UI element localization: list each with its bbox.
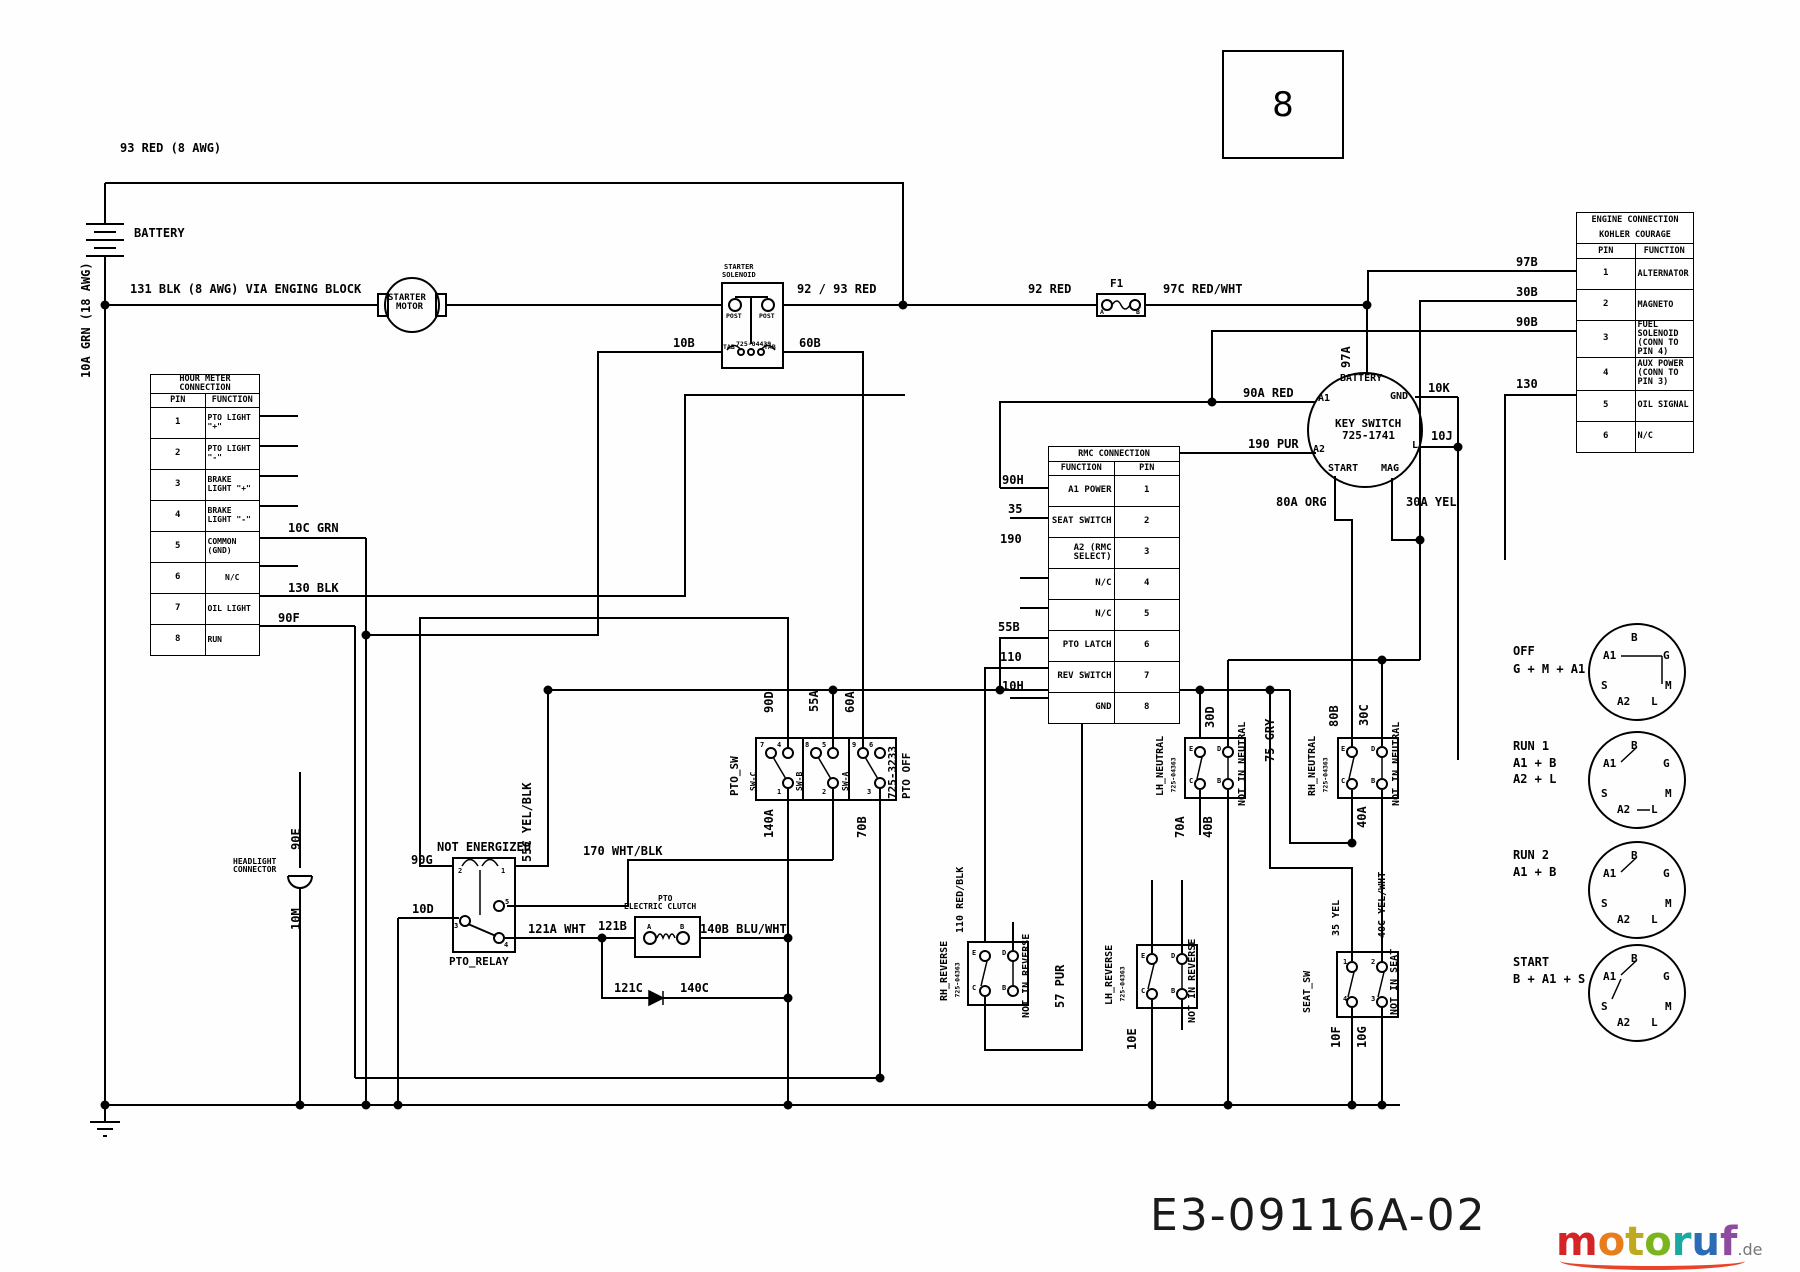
pto-relay-name: PTO_RELAY	[449, 956, 509, 967]
lh-neutral-terminal-d: D	[1217, 746, 1221, 753]
wire-label-55a: 55A	[808, 690, 820, 712]
logo-swoosh	[1560, 1252, 1745, 1270]
wire-label-10k: 10K	[1428, 382, 1450, 394]
wire-label-92-93: 92 / 93 RED	[797, 283, 876, 295]
fuse-terminal-b: B	[1136, 309, 1140, 316]
wire-label-10h: 10H	[1002, 680, 1024, 692]
wire-label-35: 35	[1008, 503, 1022, 515]
wire-label-55b: 55B	[998, 621, 1020, 633]
keypos2-terminal-s: S	[1601, 788, 1608, 799]
keypos1-terminal-l: L	[1651, 696, 1658, 707]
keypos4-terminal-g: G	[1663, 971, 1670, 982]
table-row: 2PTO LIGHT "-"	[151, 438, 260, 469]
keypos3-terminal-m: M	[1665, 898, 1672, 909]
keypos3-terminal-a2: A2	[1617, 914, 1630, 925]
keypos1-terminal-b: B	[1631, 632, 1638, 643]
wire-label-170: 170 WHT/BLK	[583, 845, 662, 857]
rmc-title: RMC CONNECTION	[1049, 447, 1180, 462]
keypos2-terminal-b: B	[1631, 740, 1638, 751]
keypos4-terminal-m: M	[1665, 1001, 1672, 1012]
lh-reverse-terminal-b: B	[1171, 988, 1175, 995]
lh-neutral-part-number: 725-04363	[1171, 757, 1178, 792]
seat-switch-state-label: NOT IN SEAT	[1390, 949, 1400, 1015]
table-row: 4AUX POWER (CONN TO PIN 3)	[1577, 357, 1694, 390]
keypos1-terminal-m: M	[1665, 680, 1672, 691]
keypos-run2-name: RUN 2	[1513, 849, 1549, 861]
keypos2-terminal-l: L	[1651, 804, 1658, 815]
keypos-run1-name: RUN 1	[1513, 740, 1549, 752]
rmc-col-pin: PIN	[1114, 462, 1180, 476]
rh-reverse-terminal-e: E	[972, 950, 976, 957]
table-row: N/C4	[1049, 569, 1180, 600]
clutch-terminal-a: A	[647, 924, 651, 931]
wire-label-130-blk: 130 BLK	[288, 582, 339, 594]
wire-label-30c: 30C	[1358, 704, 1370, 726]
seat-terminal-2: 2	[1371, 959, 1375, 966]
wiring-diagram: 93 RED (8 AWG) BATTERY 10A GRN (18 AWG) …	[0, 0, 1800, 1272]
hour-meter-title: HOUR METER CONNECTION	[151, 375, 260, 394]
table-row: 1PTO LIGHT "+"	[151, 407, 260, 438]
key-switch-name: KEY SWITCH	[1335, 418, 1401, 429]
keypos2-terminal-g: G	[1663, 758, 1670, 769]
hour-meter-col-function: FUNCTION	[205, 393, 260, 407]
solenoid-label-2: SOLENOID	[722, 272, 756, 279]
starter-motor-label-2: MOTOR	[396, 303, 423, 312]
key-switch-a2-terminal: A2	[1313, 445, 1325, 455]
table-row: 6N/C	[151, 562, 260, 593]
wire-label-70a: 70A	[1174, 816, 1186, 838]
pto-terminal-3: 3	[867, 789, 871, 796]
fuse-terminal-a: A	[1100, 309, 1104, 316]
table-row: GND8	[1049, 693, 1180, 724]
solenoid-tab-label-1: TAB	[723, 344, 735, 351]
wire-label-121b: 121B	[598, 920, 627, 932]
wire-label-140b: 140B BLU/WHT	[700, 923, 787, 935]
relay-terminal-3: 3	[454, 923, 458, 930]
wire-label-75gry: 75 GRY	[1264, 719, 1276, 762]
keypos1-terminal-a2: A2	[1617, 696, 1630, 707]
lh-reverse-terminal-e: E	[1141, 953, 1145, 960]
lh-neutral-terminal-c: C	[1189, 778, 1193, 785]
keypos2-terminal-a1: A1	[1603, 758, 1616, 769]
table-row: PTO LATCH6	[1049, 631, 1180, 662]
table-row: 1ALTERNATOR	[1577, 259, 1694, 290]
pto-sw-b-label: SW-B	[796, 772, 804, 791]
keypos3-terminal-a1: A1	[1603, 868, 1616, 879]
wire-label-10c-grn: 10C GRN	[288, 522, 339, 534]
clutch-terminal-b: B	[680, 924, 684, 931]
keypos1-terminal-s: S	[1601, 680, 1608, 691]
rh-reverse-part-number: 725-04363	[955, 962, 962, 997]
key-switch-battery-terminal: BATTERY	[1340, 374, 1382, 384]
pto-sw-a-label: SW-A	[842, 772, 850, 791]
keypos4-terminal-a1: A1	[1603, 971, 1616, 982]
key-switch-mag-terminal: MAG	[1381, 464, 1399, 474]
keypos-run1-detail-1: A1 + B	[1513, 757, 1556, 769]
keypos4-terminal-a2: A2	[1617, 1017, 1630, 1028]
wire-label-140a: 140A	[763, 809, 775, 838]
rh-neutral-state-label: NOT IN NEUTRAL	[1392, 722, 1402, 806]
hour-meter-col-pin: PIN	[151, 393, 206, 407]
lh-reverse-terminal-c: C	[1141, 988, 1145, 995]
pto-switch-name: PTO_SW	[729, 756, 740, 796]
seat-switch-name: SEAT_SW	[1303, 971, 1313, 1013]
key-switch-part-number: 725-1741	[1342, 430, 1395, 441]
rmc-col-function: FUNCTION	[1049, 462, 1115, 476]
lh-neutral-terminal-b: B	[1217, 778, 1221, 785]
wire-label-190: 190	[1000, 533, 1022, 545]
relay-terminal-1: 1	[501, 868, 505, 875]
wire-label-92: 92 RED	[1028, 283, 1071, 295]
keypos3-terminal-s: S	[1601, 898, 1608, 909]
relay-terminal-4: 4	[504, 942, 508, 949]
wire-label-90e: 90E	[290, 828, 302, 850]
wire-label-35yel: 35 YEL	[1332, 900, 1342, 936]
wires	[86, 183, 1576, 1136]
wire-label-131: 131 BLK (8 AWG) VIA ENGING BLOCK	[130, 283, 361, 295]
wire-label-130: 130	[1516, 378, 1538, 390]
wire-label-90h: 90H	[1002, 474, 1024, 486]
wire-label-121a: 121A WHT	[528, 923, 586, 935]
keypos4-terminal-s: S	[1601, 1001, 1608, 1012]
table-row: 4BRAKE LIGHT "-"	[151, 500, 260, 531]
wire-label-30b: 30B	[1516, 286, 1538, 298]
key-switch-l-terminal: L	[1412, 441, 1418, 451]
rh-reverse-terminal-b: B	[1002, 985, 1006, 992]
wire-label-97b: 97B	[1516, 256, 1538, 268]
wire-label-121c: 121C	[614, 982, 643, 994]
engine-col-pin: PIN	[1577, 244, 1636, 259]
wire-label-10f: 10F	[1330, 1026, 1342, 1048]
keypos2-terminal-m: M	[1665, 788, 1672, 799]
pto-terminal-7: 7	[760, 742, 764, 749]
solenoid-label-1: STARTER	[724, 264, 754, 271]
table-row: N/C5	[1049, 600, 1180, 631]
table-row: 3BRAKE LIGHT "+"	[151, 469, 260, 500]
table-row: 6N/C	[1577, 421, 1694, 452]
seat-terminal-1: 1	[1343, 959, 1347, 966]
wire-label-10a: 10A GRN (18 AWG)	[80, 262, 92, 378]
rh-neutral-terminal-c: C	[1341, 778, 1345, 785]
keypos2-terminal-a2: A2	[1617, 804, 1630, 815]
keypos-start-detail: B + A1 + S	[1513, 973, 1585, 985]
wire-label-40b: 40B	[1202, 816, 1214, 838]
wire-label-140c: 140C	[680, 982, 709, 994]
key-switch-a1-terminal: A1	[1318, 394, 1330, 404]
wire-label-110-redblk: 110 RED/BLK	[956, 867, 966, 933]
wire-label-10j: 10J	[1431, 430, 1453, 442]
fuse-f1-label: F1	[1110, 278, 1123, 289]
engine-subtitle: KOHLER COURAGE	[1577, 228, 1694, 244]
key-switch-gnd-terminal: GND	[1390, 392, 1408, 402]
lh-reverse-state-label: NOT IN REVERSE	[1188, 939, 1198, 1023]
schematic-lines	[0, 0, 1800, 1272]
wire-label-90f: 90F	[278, 612, 300, 624]
seat-terminal-4: 4	[1343, 996, 1347, 1003]
rh-reverse-terminal-c: C	[972, 985, 976, 992]
wire-label-110: 110	[1000, 651, 1022, 663]
keypos-run2-detail: A1 + B	[1513, 866, 1556, 878]
hour-meter-connection-table: HOUR METER CONNECTION PIN FUNCTION 1PTO …	[150, 374, 260, 656]
keypos-off-detail: G + M + A1	[1513, 663, 1585, 675]
keypos-run1-detail-2: A2 + L	[1513, 773, 1556, 785]
table-row: 2MAGNETO	[1577, 290, 1694, 321]
rh-reverse-terminal-d: D	[1002, 950, 1006, 957]
rh-neutral-terminal-e: E	[1341, 746, 1345, 753]
lh-neutral-name: LH_NEUTRAL	[1156, 736, 1166, 796]
wire-label-60b: 60B	[799, 337, 821, 349]
rh-reverse-name: RH_REVERSE	[940, 941, 950, 1001]
wire-label-90b: 90B	[1516, 316, 1538, 328]
wire-label-90g: 90G	[411, 854, 433, 866]
table-row: 5COMMON (GND)	[151, 531, 260, 562]
pto-terminal-1: 1	[777, 789, 781, 796]
wire-label-40c: 40C YEL/WHT	[1378, 872, 1388, 938]
key-switch-start-terminal: START	[1328, 464, 1358, 474]
rmc-connection-table: RMC CONNECTION FUNCTION PIN A1 POWER1 SE…	[1048, 446, 1180, 724]
battery-label: BATTERY	[134, 227, 185, 239]
solenoid-tab-label-2: TAB	[764, 344, 776, 351]
wire-label-190pur: 190 PUR	[1248, 438, 1299, 450]
table-row: 8RUN	[151, 624, 260, 655]
seat-terminal-3: 3	[1371, 996, 1375, 1003]
solenoid-post-label-2: POST	[759, 313, 775, 320]
keypos4-terminal-b: B	[1631, 953, 1638, 964]
solenoid-post-label-1: POST	[726, 313, 742, 320]
rh-neutral-terminal-b: B	[1371, 778, 1375, 785]
keypos1-terminal-a1: A1	[1603, 650, 1616, 661]
document-number: E3-09116A-02	[1150, 1190, 1487, 1241]
table-row: A2 (RMC SELECT)3	[1049, 538, 1180, 569]
wire-label-93: 93 RED (8 AWG)	[120, 142, 221, 154]
engine-connection-table: ENGINE CONNECTION KOHLER COURAGE PIN FUN…	[1576, 212, 1694, 453]
lh-reverse-part-number: 725-04363	[1120, 966, 1127, 1001]
clutch-label-2: ELECTRIC CLUTCH	[624, 903, 696, 911]
engine-title: ENGINE CONNECTION	[1577, 213, 1694, 229]
pto-terminal-2: 2	[822, 789, 826, 796]
pto-switch-part-number: 725-3233	[887, 746, 898, 799]
wire-label-30d: 30D	[1204, 706, 1216, 728]
keypos3-terminal-b: B	[1631, 850, 1638, 861]
wire-label-57pur: 57 PUR	[1054, 965, 1066, 1008]
wire-label-70b: 70B	[856, 816, 868, 838]
wire-label-97c: 97C RED/WHT	[1163, 283, 1242, 295]
pto-terminal-8: 8	[805, 742, 809, 749]
rh-neutral-terminal-d: D	[1371, 746, 1375, 753]
keypos1-terminal-g: G	[1663, 650, 1670, 661]
wire-label-80b: 80B	[1328, 705, 1340, 727]
table-row: SEAT SWITCH2	[1049, 507, 1180, 538]
rh-reverse-state-label: NOT IN REVERSE	[1022, 934, 1032, 1018]
pto-terminal-6: 6	[869, 742, 873, 749]
relay-terminal-5: 5	[505, 899, 509, 906]
wire-label-60a: 60A	[844, 691, 856, 713]
wire-label-30a: 30A YEL	[1406, 496, 1457, 508]
engine-col-function: FUNCTION	[1635, 244, 1694, 259]
keypos3-terminal-l: L	[1651, 914, 1658, 925]
not-energized-label: NOT ENERGIZED	[437, 841, 531, 853]
table-row: 3FUEL SOLENOID (CONN TO PIN 4)	[1577, 321, 1694, 358]
wire-label-90a: 90A RED	[1243, 387, 1294, 399]
pto-sw-c-label: SW-C	[750, 772, 758, 791]
pto-terminal-9: 9	[852, 742, 856, 749]
wire-label-40a: 40A	[1356, 806, 1368, 828]
relay-terminal-2: 2	[458, 868, 462, 875]
table-row: 7OIL LIGHT	[151, 593, 260, 624]
table-row: A1 POWER1	[1049, 476, 1180, 507]
lh-neutral-state-label: NOT IN NEUTRAL	[1238, 722, 1248, 806]
keypos-start-name: START	[1513, 956, 1549, 968]
pto-terminal-4: 4	[777, 742, 781, 749]
pto-terminal-5: 5	[822, 742, 826, 749]
lh-reverse-terminal-d: D	[1171, 953, 1175, 960]
wire-label-80a: 80A ORG	[1276, 496, 1327, 508]
keypos3-terminal-g: G	[1663, 868, 1670, 879]
keypos-off-name: OFF	[1513, 645, 1535, 657]
lh-neutral-terminal-e: E	[1189, 746, 1193, 753]
wire-label-10m: 10M	[290, 908, 302, 930]
rh-neutral-part-number: 725-04363	[1323, 757, 1330, 792]
table-row: REV SWITCH7	[1049, 662, 1180, 693]
page-number-box: 8	[1222, 50, 1344, 159]
table-row: 5OIL SIGNAL	[1577, 390, 1694, 421]
pto-off-label: PTO OFF	[901, 753, 912, 799]
rh-neutral-name: RH_NEUTRAL	[1308, 736, 1318, 796]
wire-label-90d: 90D	[763, 691, 775, 713]
wire-label-10e: 10E	[1126, 1028, 1138, 1050]
junction-dots	[101, 301, 1463, 1110]
keypos4-terminal-l: L	[1651, 1017, 1658, 1028]
headlight-connector-label-2: CONNECTOR	[233, 866, 276, 874]
wire-label-97a: 97A	[1340, 346, 1352, 368]
lh-reverse-name: LH_REVERSE	[1105, 945, 1115, 1005]
wire-label-10d: 10D	[412, 903, 434, 915]
wire-label-10g: 10G	[1356, 1026, 1368, 1048]
wire-label-10b: 10B	[673, 337, 695, 349]
page-number: 8	[1272, 85, 1294, 125]
